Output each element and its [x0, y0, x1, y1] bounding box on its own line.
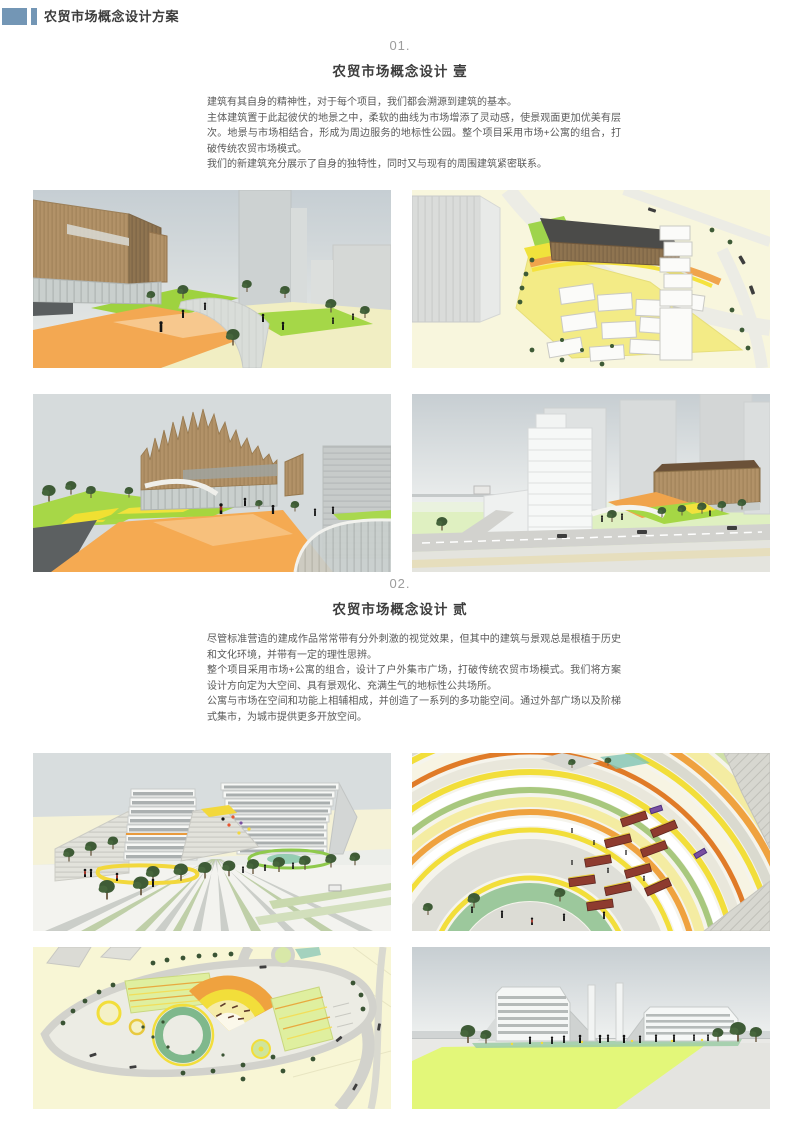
- section2-paragraphs: 尽管标准营造的建成作品常常带有分外刺激的视觉效果，但其中的建筑与景观总是根植于历…: [207, 632, 621, 726]
- elevation-towers-render: [412, 947, 770, 1109]
- figure-elevation-towers: [412, 947, 770, 1109]
- tower-and-market-render: [412, 394, 770, 572]
- section2-paragraph-3: 公寓与市场在空间和功能上相辅相成，并创造了一系列的多功能空间。通过外部广场以及阶…: [207, 694, 621, 725]
- figure-stepped-apartments: [33, 753, 391, 931]
- stepped-apartments-plaza-render: [33, 753, 391, 931]
- header-accent-square: [2, 8, 27, 25]
- section1-paragraph-1: 建筑有其自身的精神性，对于每个项目，我们都会溯源到建筑的基本。: [207, 95, 621, 111]
- section1-title: 农贸市场概念设计 壹: [0, 60, 800, 80]
- section2-paragraph-1: 尽管标准营造的建成作品常常带有分外刺激的视觉效果，但其中的建筑与景观总是根植于历…: [207, 632, 621, 663]
- figure-aerial-view: [412, 190, 770, 368]
- figure-tower-and-market: [412, 394, 770, 572]
- section1-paragraph-2: 主体建筑置于此起彼伏的地景之中，柔软的曲线为市场增添了灵动感，使景观面更加优美有…: [207, 111, 621, 158]
- site-plan-render: [33, 947, 391, 1109]
- street-view-render: [33, 190, 391, 368]
- header-accent-bar: [31, 8, 37, 25]
- page: 农贸市场概念设计方案 01. 农贸市场概念设计 壹 建筑有其自身的精神性，对于每…: [0, 0, 800, 1131]
- figure-street-view: [33, 190, 391, 368]
- section1-number: 01.: [0, 38, 800, 53]
- figure-timber-facade: [33, 394, 391, 572]
- section1-paragraph-3: 我们的新建筑充分展示了自身的独特性，同时又与现有的周围建筑紧密联系。: [207, 157, 621, 173]
- aerial-site-render: [412, 190, 770, 368]
- terraced-market-steps-render: [412, 753, 770, 931]
- section2-number: 02.: [0, 576, 800, 591]
- figure-site-plan: [33, 947, 391, 1109]
- timber-facade-render: [33, 394, 391, 572]
- section1-paragraphs: 建筑有其自身的精神性，对于每个项目，我们都会溯源到建筑的基本。 主体建筑置于此起…: [207, 95, 621, 173]
- section2-title: 农贸市场概念设计 贰: [0, 598, 800, 618]
- page-title: 农贸市场概念设计方案: [44, 6, 179, 25]
- figure-terraced-steps: [412, 753, 770, 931]
- section2-paragraph-2: 整个项目采用市场+公寓的组合，设计了户外集市广场，打破传统农贸市场模式。我们将方…: [207, 663, 621, 694]
